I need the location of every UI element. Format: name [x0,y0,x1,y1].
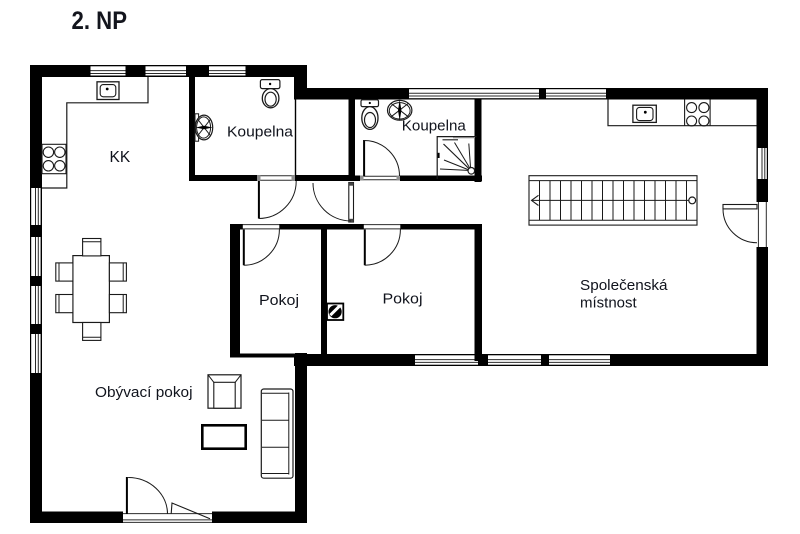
svg-text:2. NP: 2. NP [72,7,128,35]
svg-text:Koupelna: Koupelna [227,123,294,140]
svg-text:Koupelna: Koupelna [402,117,467,134]
svg-text:Pokoj: Pokoj [259,292,299,309]
svg-text:Obývací pokoj: Obývací pokoj [95,384,193,401]
svg-text:KK: KK [110,149,131,166]
svg-text:Pokoj: Pokoj [383,290,423,307]
svg-text:Společenská: Společenská [580,277,668,294]
svg-text:místnost: místnost [580,294,638,311]
